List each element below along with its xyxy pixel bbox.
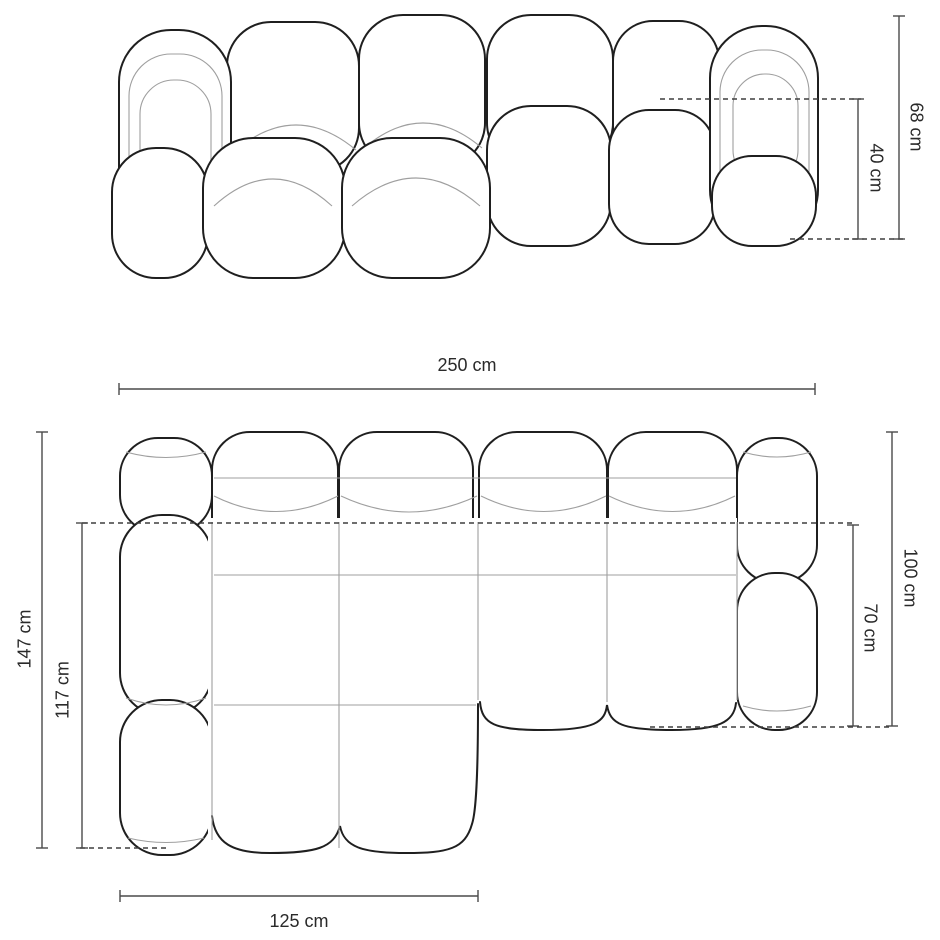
top-plan-view: 250 cm [14, 355, 920, 931]
chaise-front-cushion-1 [112, 148, 208, 278]
plan-armrest-left-seg2 [120, 515, 212, 715]
dim-chaise-inner-depth-label: 117 cm [52, 661, 72, 719]
dim-seat-height-label: 40 cm [867, 143, 887, 192]
dim-chaise-inner-depth: 117 cm [52, 523, 88, 848]
dim-total-depth-label: 147 cm [14, 609, 34, 668]
plan-armrest-right-seg2 [737, 573, 817, 730]
plan-armrest-left-seg3 [120, 700, 212, 855]
front-elevation-view: 68 cm 40 cm [112, 15, 927, 278]
dim-body-depth: 100 cm [886, 432, 921, 726]
dim-chaise-width-label: 125 cm [269, 911, 328, 931]
sofa-dimension-diagram: 68 cm 40 cm 250 cm [0, 0, 940, 940]
plan-armrest-right-seg1 [737, 438, 817, 583]
chaise-field [208, 700, 478, 850]
chaise-front-cushion-3 [342, 138, 490, 278]
dim-total-height: 68 cm [893, 16, 927, 239]
chaise-front-cushion-2 [203, 138, 345, 278]
seat-cushion-right-2 [609, 110, 715, 244]
dim-total-depth: 147 cm [14, 432, 48, 848]
armrest-right-lower-bubble [712, 156, 816, 246]
dim-seat-depth-label: 70 cm [861, 603, 881, 652]
dim-total-width-label: 250 cm [437, 355, 496, 375]
dim-seat-depth: 70 cm [847, 525, 881, 726]
seat-cushion-right-1 [487, 106, 611, 246]
dim-total-height-label: 68 cm [907, 102, 927, 151]
dim-seat-height: 40 cm [852, 99, 887, 239]
dim-chaise-width: 125 cm [120, 890, 478, 931]
dim-total-width: 250 cm [119, 355, 815, 395]
dim-body-depth-label: 100 cm [901, 548, 921, 607]
sofa-dimension-diagram-page: 68 cm 40 cm 250 cm [0, 0, 940, 940]
seat-field [208, 518, 737, 728]
